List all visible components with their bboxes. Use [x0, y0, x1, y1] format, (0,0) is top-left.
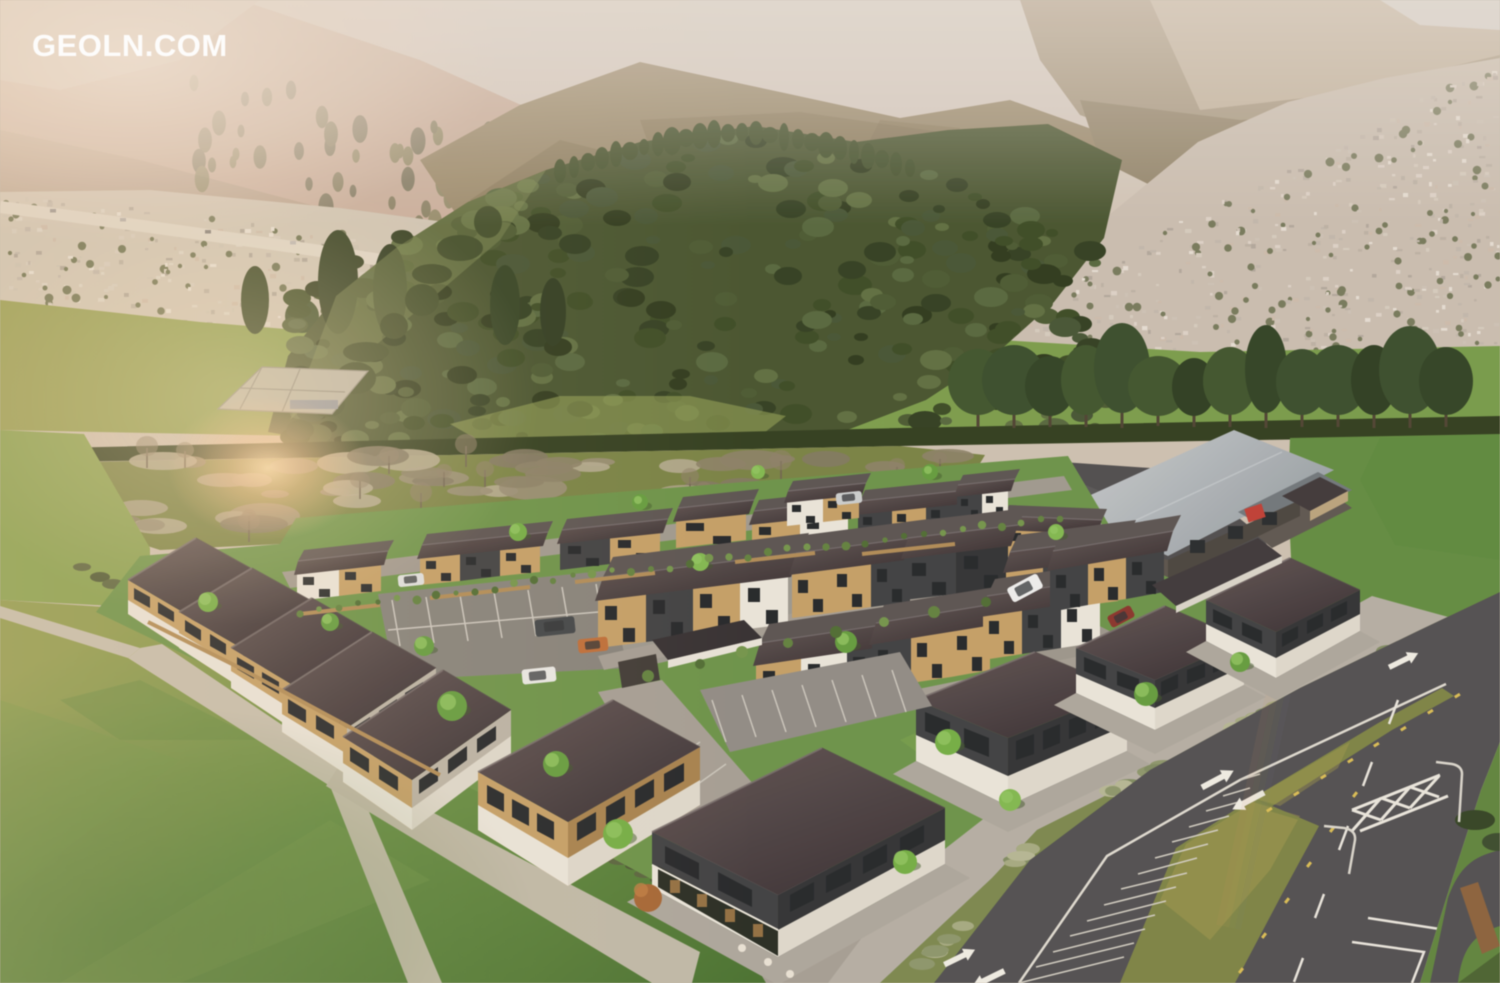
svg-text:GEOLN.COM: GEOLN.COM: [32, 28, 228, 63]
